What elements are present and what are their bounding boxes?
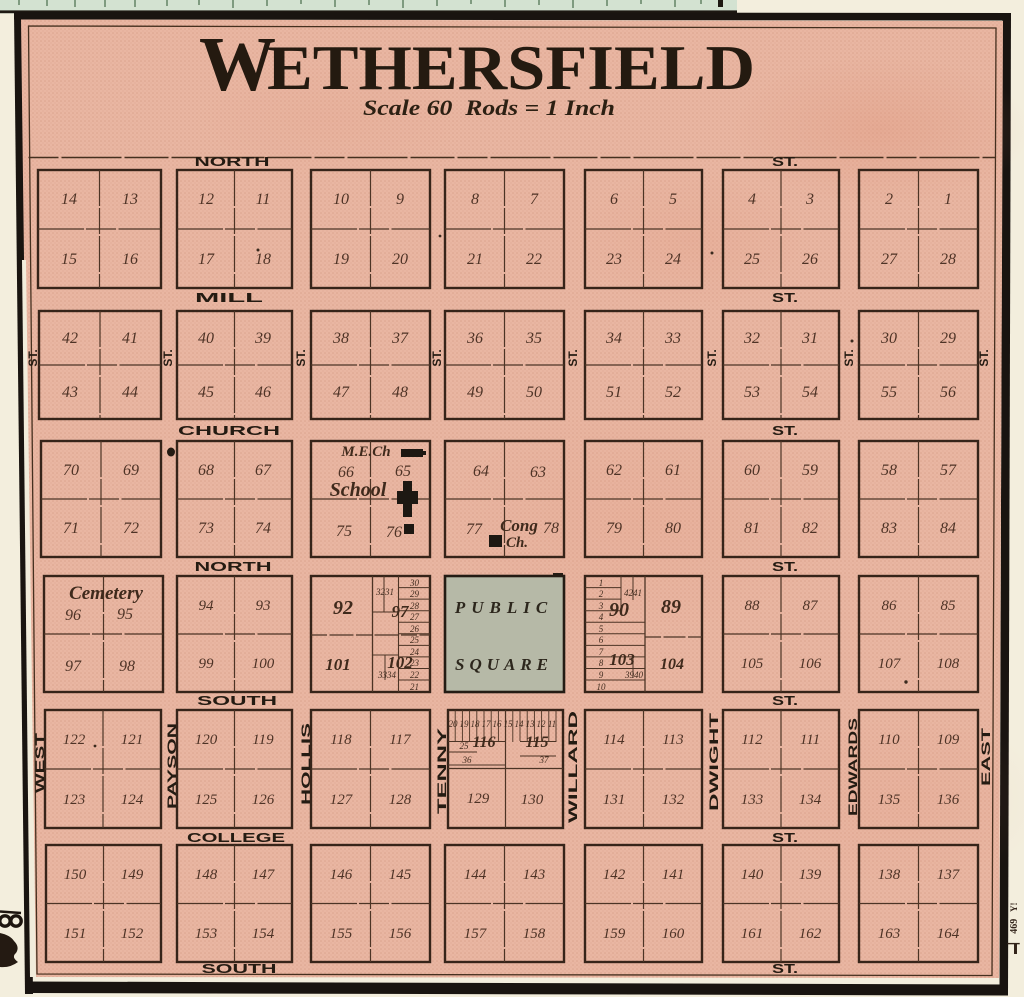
svg-text:37: 37 (539, 755, 550, 765)
svg-text:25: 25 (460, 741, 470, 751)
svg-text:101: 101 (325, 655, 351, 674)
svg-text:Y!: Y! (1009, 903, 1019, 913)
svg-text:44: 44 (122, 384, 138, 401)
svg-text:48: 48 (392, 384, 408, 401)
svg-text:114: 114 (603, 732, 625, 748)
svg-text:EAST: EAST (979, 727, 993, 786)
svg-text:33: 33 (664, 330, 681, 347)
svg-text:136: 136 (937, 792, 960, 808)
svg-text:ST.: ST. (161, 349, 175, 366)
svg-text:28: 28 (940, 251, 956, 268)
svg-text:54: 54 (802, 384, 818, 401)
svg-text:17: 17 (198, 251, 215, 268)
svg-text:25: 25 (744, 251, 760, 268)
svg-text:ST.: ST. (772, 830, 798, 845)
svg-text:52: 52 (665, 384, 681, 401)
svg-text:117: 117 (389, 732, 412, 748)
svg-text:ST.: ST. (772, 290, 798, 305)
svg-text:126: 126 (252, 792, 275, 808)
svg-text:56: 56 (940, 384, 956, 401)
svg-text:105: 105 (741, 656, 764, 672)
svg-text:6: 6 (610, 191, 618, 208)
svg-text:108: 108 (937, 656, 960, 672)
svg-text:12: 12 (198, 191, 214, 208)
svg-text:16: 16 (493, 719, 503, 729)
svg-text:ST.: ST. (294, 349, 308, 366)
svg-text:69: 69 (123, 462, 139, 479)
svg-text:14: 14 (61, 191, 77, 208)
svg-text:ST.: ST. (772, 154, 798, 169)
svg-text:83: 83 (881, 520, 897, 537)
svg-text:123: 123 (63, 792, 86, 808)
svg-text:8: 8 (599, 658, 604, 668)
svg-text:55: 55 (881, 384, 897, 401)
svg-text:145: 145 (389, 867, 412, 883)
svg-text:73: 73 (198, 520, 214, 537)
svg-text:118: 118 (330, 732, 352, 748)
svg-text:134: 134 (799, 792, 822, 808)
svg-text:▬▏ 469: ▬▏ 469 (1007, 919, 1020, 954)
svg-text:ST.: ST. (842, 349, 856, 366)
svg-text:WILLARD: WILLARD (566, 710, 580, 823)
svg-text:6: 6 (599, 635, 604, 645)
svg-text:23: 23 (606, 251, 622, 268)
svg-text:22: 22 (526, 251, 542, 268)
svg-text:11: 11 (548, 719, 556, 729)
svg-text:140: 140 (741, 867, 764, 883)
svg-text:26: 26 (410, 624, 420, 634)
svg-text:89: 89 (661, 596, 681, 618)
svg-text:Cong: Cong (500, 516, 538, 535)
svg-text:161: 161 (741, 926, 764, 942)
svg-text:7: 7 (530, 191, 539, 208)
svg-text:131: 131 (603, 792, 626, 808)
svg-text:ST.: ST. (772, 693, 798, 708)
svg-text:26: 26 (802, 251, 818, 268)
svg-text:68: 68 (198, 462, 214, 479)
svg-text:ST.: ST. (772, 559, 798, 574)
svg-text:113: 113 (662, 732, 683, 748)
svg-text:71: 71 (63, 520, 79, 537)
svg-text:13: 13 (526, 719, 536, 729)
svg-text:36: 36 (462, 755, 473, 765)
svg-text:157: 157 (464, 926, 488, 942)
svg-text:90: 90 (609, 599, 629, 621)
svg-text:100: 100 (252, 656, 275, 672)
svg-text:154: 154 (252, 926, 275, 942)
svg-text:3231: 3231 (375, 587, 394, 597)
svg-text:116: 116 (472, 734, 495, 751)
svg-text:HOLLIS: HOLLIS (299, 723, 313, 805)
svg-text:16: 16 (122, 251, 138, 268)
svg-text:146: 146 (330, 867, 353, 883)
svg-text:ST.: ST. (430, 349, 444, 366)
svg-text:7: 7 (599, 647, 604, 657)
svg-text:155: 155 (330, 926, 353, 942)
svg-text:162: 162 (799, 926, 822, 942)
svg-text:15: 15 (504, 719, 514, 729)
svg-text:Scale 60 Rods = 1 Inch: Scale 60 Rods = 1 Inch (363, 95, 615, 120)
svg-text:ST.: ST. (566, 349, 580, 366)
svg-text:106: 106 (799, 656, 822, 672)
svg-text:5: 5 (669, 191, 677, 208)
svg-text:CHURCH: CHURCH (178, 423, 280, 438)
svg-text:27: 27 (410, 612, 420, 622)
svg-text:47: 47 (333, 384, 350, 401)
svg-text:SQUARE: SQUARE (455, 655, 553, 674)
svg-text:13: 13 (122, 191, 138, 208)
svg-text:94: 94 (199, 598, 215, 614)
svg-text:103: 103 (609, 650, 635, 669)
svg-text:4241: 4241 (624, 588, 642, 598)
svg-text:COLLEGE: COLLEGE (187, 830, 286, 845)
svg-text:18: 18 (255, 251, 271, 268)
svg-text:107: 107 (878, 656, 902, 672)
svg-text:130: 130 (521, 792, 544, 808)
svg-text:97: 97 (65, 658, 82, 675)
svg-text:152: 152 (121, 926, 144, 942)
svg-text:SOUTH: SOUTH (197, 693, 277, 708)
svg-text:28: 28 (410, 601, 420, 611)
svg-text:32: 32 (743, 330, 760, 347)
svg-text:80: 80 (665, 520, 681, 537)
svg-text:132: 132 (662, 792, 685, 808)
svg-text:21: 21 (467, 251, 483, 268)
svg-text:29: 29 (940, 330, 956, 347)
svg-text:98: 98 (119, 658, 135, 675)
svg-text:TENNY: TENNY (435, 728, 449, 814)
svg-text:79: 79 (606, 520, 622, 537)
svg-text:57: 57 (940, 462, 957, 479)
svg-text:DWIGHT: DWIGHT (707, 712, 721, 811)
svg-text:20: 20 (449, 719, 459, 729)
svg-text:ST.: ST. (26, 349, 40, 366)
svg-text:110: 110 (878, 732, 900, 748)
svg-text:128: 128 (389, 792, 412, 808)
svg-text:18: 18 (471, 719, 481, 729)
svg-text:67: 67 (255, 462, 272, 479)
svg-text:159: 159 (603, 926, 626, 942)
svg-text:63: 63 (530, 464, 546, 481)
svg-text:4: 4 (599, 612, 604, 622)
svg-text:78: 78 (543, 520, 559, 537)
svg-text:14: 14 (515, 719, 525, 729)
svg-text:151: 151 (64, 926, 87, 942)
svg-text:11: 11 (256, 191, 271, 208)
svg-text:164: 164 (937, 926, 960, 942)
svg-text:70: 70 (63, 462, 79, 479)
svg-text:75: 75 (336, 523, 352, 540)
svg-text:15: 15 (61, 251, 77, 268)
svg-text:148: 148 (195, 867, 218, 883)
svg-text:19: 19 (333, 251, 349, 268)
svg-text:24: 24 (665, 251, 681, 268)
svg-text:Cemetery: Cemetery (69, 583, 143, 604)
svg-text:10: 10 (333, 191, 349, 208)
svg-text:85: 85 (941, 598, 957, 614)
svg-text:77: 77 (466, 521, 483, 538)
svg-text:119: 119 (252, 732, 274, 748)
svg-text:ST.: ST. (705, 349, 719, 366)
svg-text:156: 156 (389, 926, 412, 942)
svg-text:27: 27 (881, 251, 898, 268)
svg-text:109: 109 (937, 732, 960, 748)
svg-text:51: 51 (606, 384, 622, 401)
svg-text:150: 150 (64, 867, 87, 883)
svg-text:97: 97 (392, 602, 411, 621)
svg-text:4: 4 (748, 191, 756, 208)
svg-text:153: 153 (195, 926, 218, 942)
svg-text:10: 10 (597, 682, 607, 692)
svg-text:42: 42 (62, 330, 78, 347)
svg-text:147: 147 (252, 867, 276, 883)
svg-text:64: 64 (473, 463, 489, 480)
svg-text:EDWARDS: EDWARDS (846, 718, 860, 816)
svg-text:NORTH: NORTH (195, 559, 272, 574)
svg-text:50: 50 (526, 384, 542, 401)
svg-text:133: 133 (741, 792, 764, 808)
svg-text:141: 141 (662, 867, 685, 883)
svg-text:17: 17 (482, 719, 492, 729)
svg-text:19: 19 (460, 719, 470, 729)
svg-text:ST.: ST. (772, 423, 798, 438)
svg-text:124: 124 (121, 792, 144, 808)
svg-text:115: 115 (525, 734, 548, 751)
svg-text:129: 129 (467, 791, 490, 807)
svg-text:3: 3 (805, 191, 814, 208)
svg-text:96: 96 (65, 607, 81, 624)
svg-text:5: 5 (599, 624, 604, 634)
svg-text:9: 9 (396, 191, 404, 208)
svg-text:3: 3 (598, 601, 604, 611)
svg-text:W: W (199, 21, 276, 107)
svg-text:125: 125 (195, 792, 218, 808)
svg-text:62: 62 (606, 462, 622, 479)
svg-text:41: 41 (122, 330, 138, 347)
svg-text:143: 143 (523, 867, 546, 883)
svg-text:31: 31 (801, 330, 818, 347)
svg-text:160: 160 (662, 926, 685, 942)
svg-text:76: 76 (386, 524, 402, 541)
svg-text:25: 25 (410, 635, 420, 645)
svg-text:9: 9 (599, 670, 604, 680)
svg-text:121: 121 (121, 732, 144, 748)
svg-text:8: 8 (471, 191, 479, 208)
svg-text:138: 138 (878, 867, 901, 883)
svg-text:163: 163 (878, 926, 901, 942)
svg-text:29: 29 (410, 589, 420, 599)
svg-text:49: 49 (467, 384, 483, 401)
svg-text:122: 122 (63, 732, 86, 748)
svg-text:142: 142 (603, 867, 626, 883)
svg-text:SOUTH: SOUTH (202, 961, 277, 976)
svg-text:3334: 3334 (377, 670, 397, 680)
svg-text:86: 86 (882, 598, 898, 614)
svg-text:111: 111 (800, 732, 820, 748)
svg-text:30: 30 (880, 330, 897, 347)
svg-text:39: 39 (254, 330, 271, 347)
svg-text:PUBLIC: PUBLIC (454, 598, 553, 617)
svg-text:112: 112 (741, 732, 763, 748)
svg-text:M.E.Ch: M.E.Ch (340, 444, 390, 460)
svg-text:ST.: ST. (977, 349, 991, 366)
svg-text:2: 2 (599, 589, 604, 599)
svg-text:81: 81 (744, 520, 760, 537)
svg-text:36: 36 (466, 330, 483, 347)
svg-text:PAYSON: PAYSON (165, 723, 179, 809)
svg-text:88: 88 (745, 598, 761, 614)
svg-text:WEST: WEST (33, 732, 47, 793)
svg-text:30: 30 (409, 578, 420, 588)
svg-text:104: 104 (660, 656, 684, 673)
svg-text:60: 60 (744, 462, 760, 479)
svg-text:139: 139 (799, 867, 822, 883)
svg-text:135: 135 (878, 792, 901, 808)
svg-text:144: 144 (464, 867, 487, 883)
svg-text:Ch.: Ch. (506, 535, 528, 551)
svg-text:2: 2 (885, 191, 893, 208)
svg-text:NORTH: NORTH (195, 154, 270, 169)
svg-text:87: 87 (803, 598, 820, 614)
svg-text:1: 1 (944, 191, 952, 208)
svg-text:127: 127 (330, 792, 354, 808)
svg-text:School: School (330, 479, 387, 501)
svg-text:40: 40 (198, 330, 214, 347)
svg-text:99: 99 (199, 656, 215, 672)
svg-text:35: 35 (525, 330, 542, 347)
svg-text:53: 53 (744, 384, 760, 401)
svg-text:137: 137 (937, 867, 961, 883)
svg-text:21: 21 (410, 682, 419, 692)
svg-text:38: 38 (332, 330, 349, 347)
svg-text:46: 46 (255, 384, 271, 401)
svg-text:59: 59 (802, 462, 818, 479)
svg-text:158: 158 (523, 926, 546, 942)
svg-text:34: 34 (605, 330, 622, 347)
svg-text:20: 20 (392, 251, 408, 268)
svg-text:92: 92 (333, 597, 353, 619)
svg-text:58: 58 (881, 462, 897, 479)
svg-text:3940: 3940 (624, 670, 644, 680)
svg-text:65: 65 (395, 463, 411, 480)
svg-text:MILL: MILL (195, 290, 263, 305)
svg-text:149: 149 (121, 867, 144, 883)
svg-text:1: 1 (599, 578, 604, 588)
svg-text:74: 74 (255, 520, 271, 537)
svg-text:120: 120 (195, 732, 218, 748)
svg-text:ST.: ST. (772, 961, 798, 976)
svg-text:43: 43 (62, 384, 78, 401)
svg-text:93: 93 (256, 598, 271, 614)
svg-text:ETHERSFIELD: ETHERSFIELD (267, 32, 755, 103)
svg-text:37: 37 (391, 330, 409, 347)
svg-text:12: 12 (537, 719, 547, 729)
svg-text:61: 61 (665, 462, 681, 479)
svg-text:95: 95 (117, 606, 133, 623)
svg-text:72: 72 (123, 520, 139, 537)
svg-text:45: 45 (198, 384, 214, 401)
svg-text:82: 82 (802, 520, 818, 537)
svg-text:84: 84 (940, 520, 956, 537)
